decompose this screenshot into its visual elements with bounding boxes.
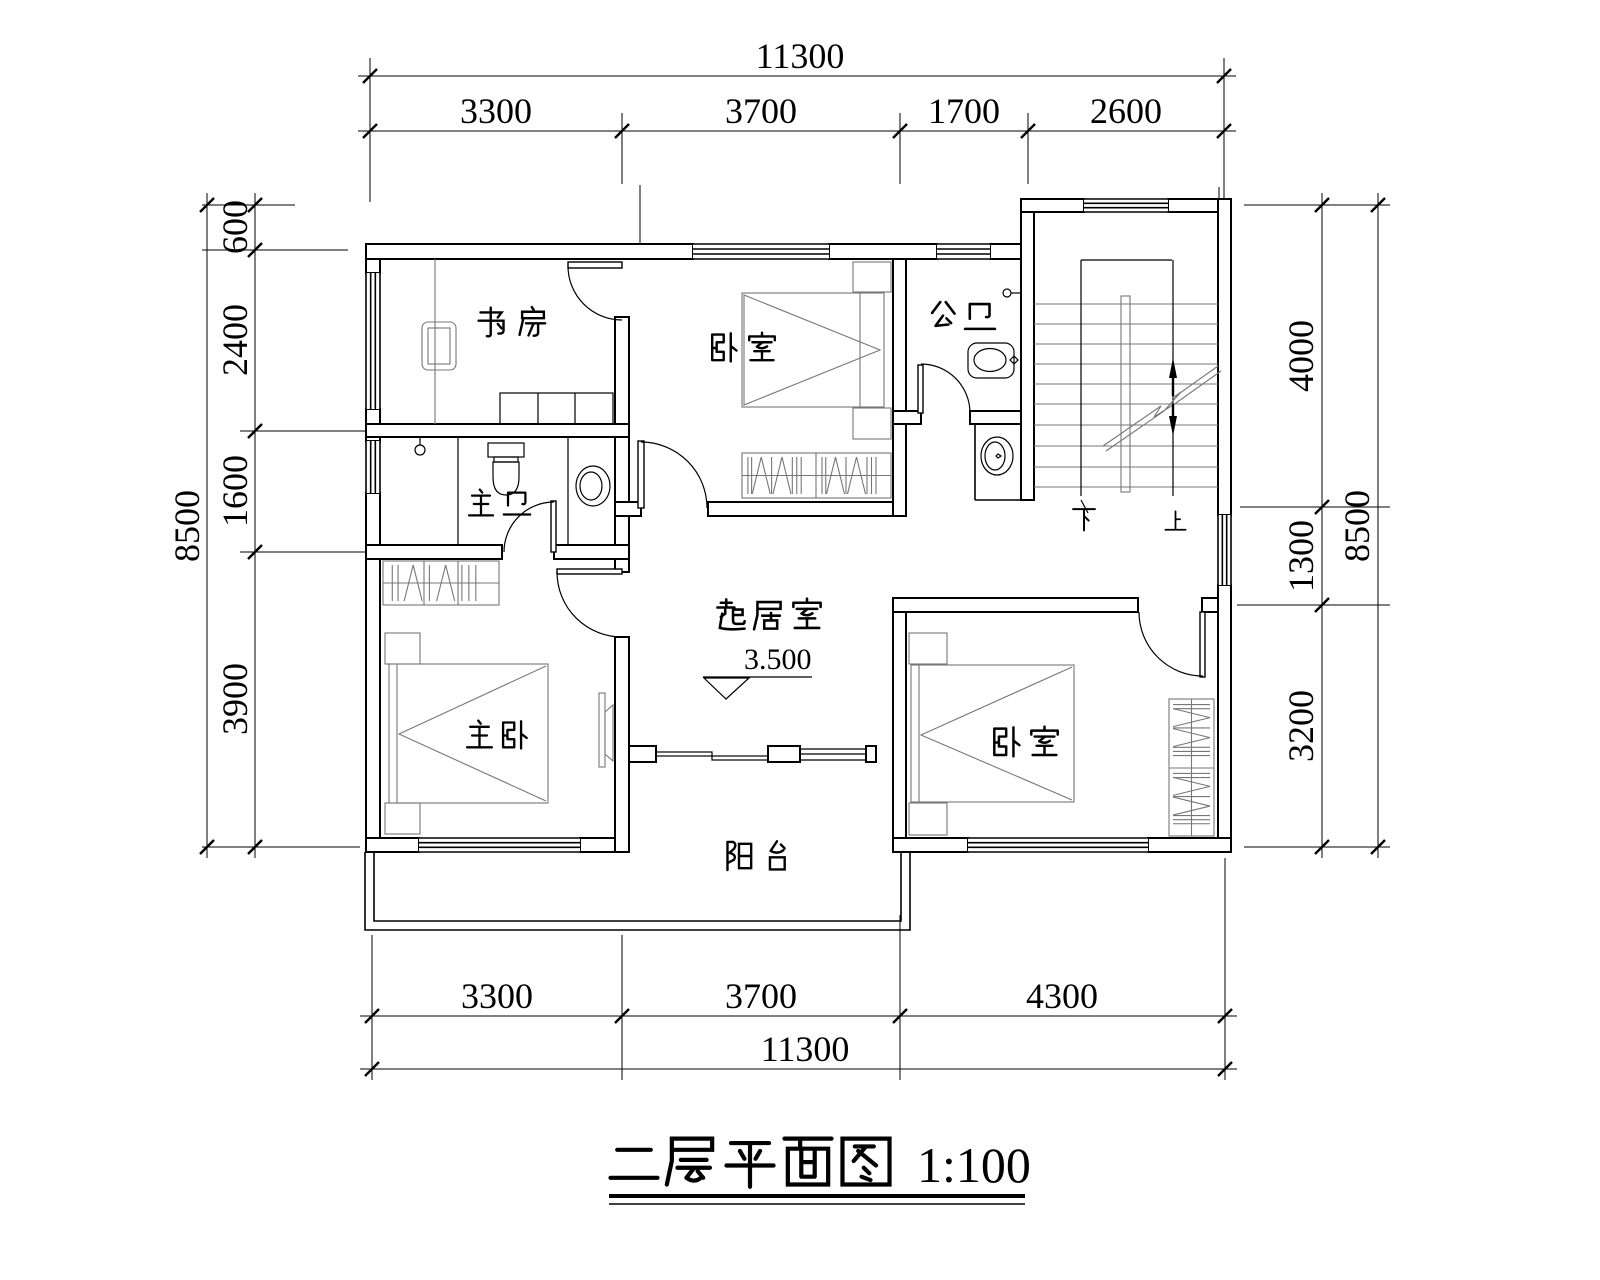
svg-text:11300: 11300 [761,1029,850,1069]
svg-text:3900: 3900 [215,663,255,735]
svg-text:1:100: 1:100 [917,1137,1031,1193]
svg-text:8500: 8500 [1337,490,1377,562]
svg-text:3700: 3700 [725,976,797,1016]
svg-text:2600: 2600 [1090,91,1162,131]
svg-text:1700: 1700 [928,91,1000,131]
svg-text:3700: 3700 [725,91,797,131]
svg-text:3300: 3300 [461,976,533,1016]
svg-text:3300: 3300 [460,91,532,131]
svg-text:4300: 4300 [1026,976,1098,1016]
svg-text:3200: 3200 [1281,690,1321,762]
svg-text:4000: 4000 [1281,320,1321,392]
svg-text:11300: 11300 [756,36,845,76]
svg-text:1300: 1300 [1281,520,1321,592]
svg-text:2400: 2400 [215,304,255,376]
svg-text:600: 600 [215,200,255,254]
svg-text:3.500: 3.500 [744,643,812,676]
svg-text:8500: 8500 [167,490,207,562]
svg-text:1600: 1600 [215,455,255,527]
